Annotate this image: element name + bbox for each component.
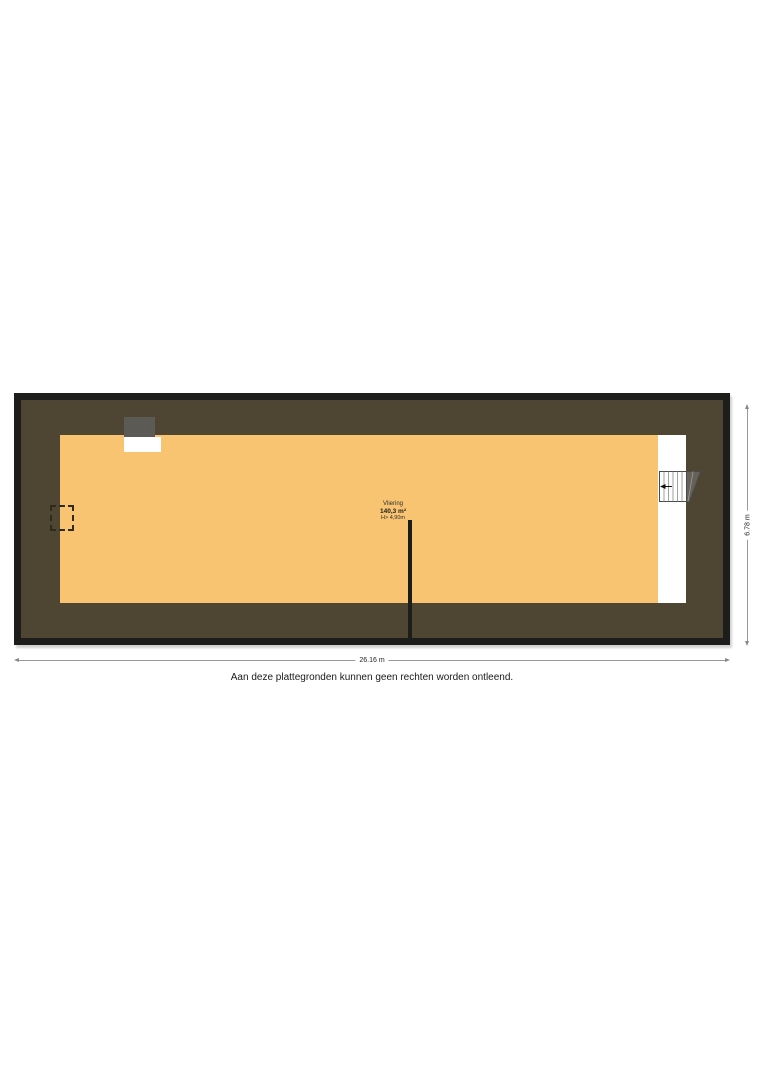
dormer-window: [124, 437, 161, 452]
width-dimension-label: 26.16 m: [355, 657, 388, 664]
arrow-left-icon: [14, 658, 19, 662]
floorplan-canvas: Vliering 140,3 m² H> 4,90m: [14, 393, 730, 645]
arrow-up-icon: [745, 404, 749, 409]
stairs-icon: [659, 471, 701, 502]
room-label: Vliering 140,3 m² H> 4,90m: [313, 501, 473, 522]
arrow-right-icon: [725, 658, 730, 662]
room-name: Vliering: [313, 501, 473, 508]
disclaimer-text: Aan deze plattegronden kunnen geen recht…: [14, 672, 730, 683]
width-dimension: 26.16 m: [14, 654, 730, 667]
dormer-roof: [124, 417, 155, 437]
height-dimension: 6.78 m: [741, 404, 754, 646]
room-area: 140,3 m²: [313, 508, 473, 515]
arrow-down-icon: [745, 641, 749, 646]
room-height: H> 4,90m: [313, 515, 473, 522]
stair-well-strip: [658, 435, 686, 603]
height-dimension-label: 6.78 m: [745, 510, 752, 539]
dashed-hatch-icon: [50, 505, 74, 531]
partition-wall: [408, 520, 412, 638]
